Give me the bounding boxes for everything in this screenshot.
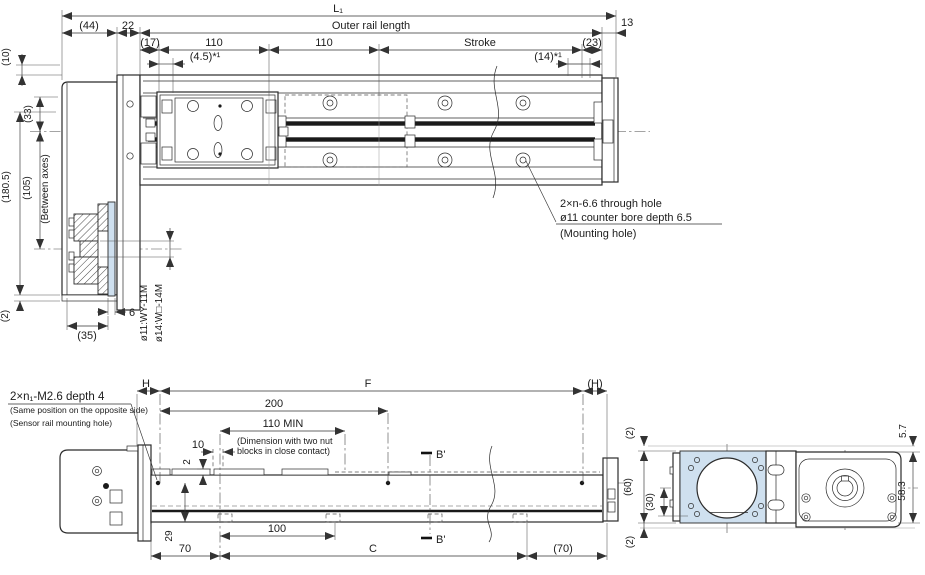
dim-10v: (10) [1,48,12,66]
dim-29: 29 [164,530,175,542]
dim-stroke: Stroke [464,37,496,49]
dim-4p5: (4.5)*¹ [190,51,221,63]
note-counter-bore: ø11 counter bore depth 6.5 [560,212,692,224]
motor-pilot-hole [697,458,757,518]
note-sensor-tap: 2×n₁-M2.6 depth 4 [10,391,105,403]
dim-H: H [142,378,150,390]
end-bracket-plate [117,75,140,310]
carriage-plan [141,92,288,168]
dim-23: (23) [582,37,602,49]
sensor-hole-dot [156,481,160,485]
center-screw [103,483,109,489]
section-label-b-top: B' [436,449,445,461]
dim-44: (44) [79,20,99,32]
end-plate [670,453,680,521]
dim-110-b: 110 [315,37,333,49]
note-sensor-same-position: (Same position on the opposite side) [10,405,148,415]
dim-200: 200 [265,398,283,410]
motor-mount-flange [680,451,766,523]
outer-rail-side [151,469,603,522]
label-shaft-option-2: ø14:W□-14M [154,284,165,342]
dim-110-min: 110 MIN [263,418,304,430]
drawing-page: L₁ (44) 22 Outer rail length 13 [0,0,925,570]
dim-33: (33) [23,105,34,123]
dim-60: (60) [623,478,634,496]
dim-2-bottomleft: (2) [0,310,11,322]
dim-58p3: 58.3 [897,481,908,501]
dim-100: 100 [268,523,286,535]
dim-17: (17) [140,37,160,49]
top-view: L₁ (44) 22 Outer rail length 13 [0,3,722,342]
dim-22: 22 [122,20,134,32]
note-nut-blocks-1: (Dimension with two nut [237,436,333,446]
motor-body [796,452,901,527]
dim-H-paren: (H) [587,378,602,390]
dim-13: 13 [621,17,633,29]
dim-30: (30) [645,493,656,511]
note-mounting-hole: (Mounting hole) [560,228,636,240]
dim-180p5: (180.5) [1,171,12,203]
sensor-rail-strip [152,469,600,475]
dim-70-paren: (70) [553,543,573,555]
technical-drawing: L₁ (44) 22 Outer rail length 13 [0,0,925,570]
dim-F: F [365,378,372,390]
label-shaft-option-1: ø11:WY-11M [139,285,150,342]
dim-105: (105) [22,176,33,199]
dim-2-bottom: (2) [625,536,636,548]
motor-housing-side [60,445,151,541]
end-view: (2) (60) (30) (2) 5.7 58.3 [623,424,920,549]
note-nut-blocks-2: blocks in close contact) [237,446,330,456]
motor-housing-plan [62,82,117,301]
rail-end-cap-side [603,458,618,521]
note-sensor-mounting: (Sensor rail mounting hole) [10,418,112,428]
side-view: B' B' 2×n₁-M2.6 depth 4 (Same position o… [8,378,632,560]
dim-35: (35) [77,330,97,342]
dim-L1: L₁ [333,3,343,15]
dim-10h: 10 [192,439,204,451]
spacer-section [766,451,796,523]
dim-2-top: (2) [625,427,636,439]
shaft-keyway [842,476,849,481]
dim-110-a: 110 [205,37,223,49]
dim-5p7: 5.7 [898,424,909,438]
dim-outer-rail: Outer rail length [332,20,410,32]
label-between-axes: (Between axes) [40,154,51,223]
dim-14: (14)*¹ [534,51,562,63]
dim-6: 6 [129,307,135,319]
dim-70: 70 [179,543,191,555]
section-label-b-bottom: B' [436,534,445,546]
dim-C: C [369,543,377,555]
note-through-hole: 2×n-6.6 through hole [560,198,662,210]
side-dimensions: H F (H) 200 110 MIN (Dimension with two … [137,378,607,560]
motor-flange-plate [108,202,115,296]
dim-2-strip: 2 [182,459,193,465]
sensor-hole-dot [580,481,584,485]
